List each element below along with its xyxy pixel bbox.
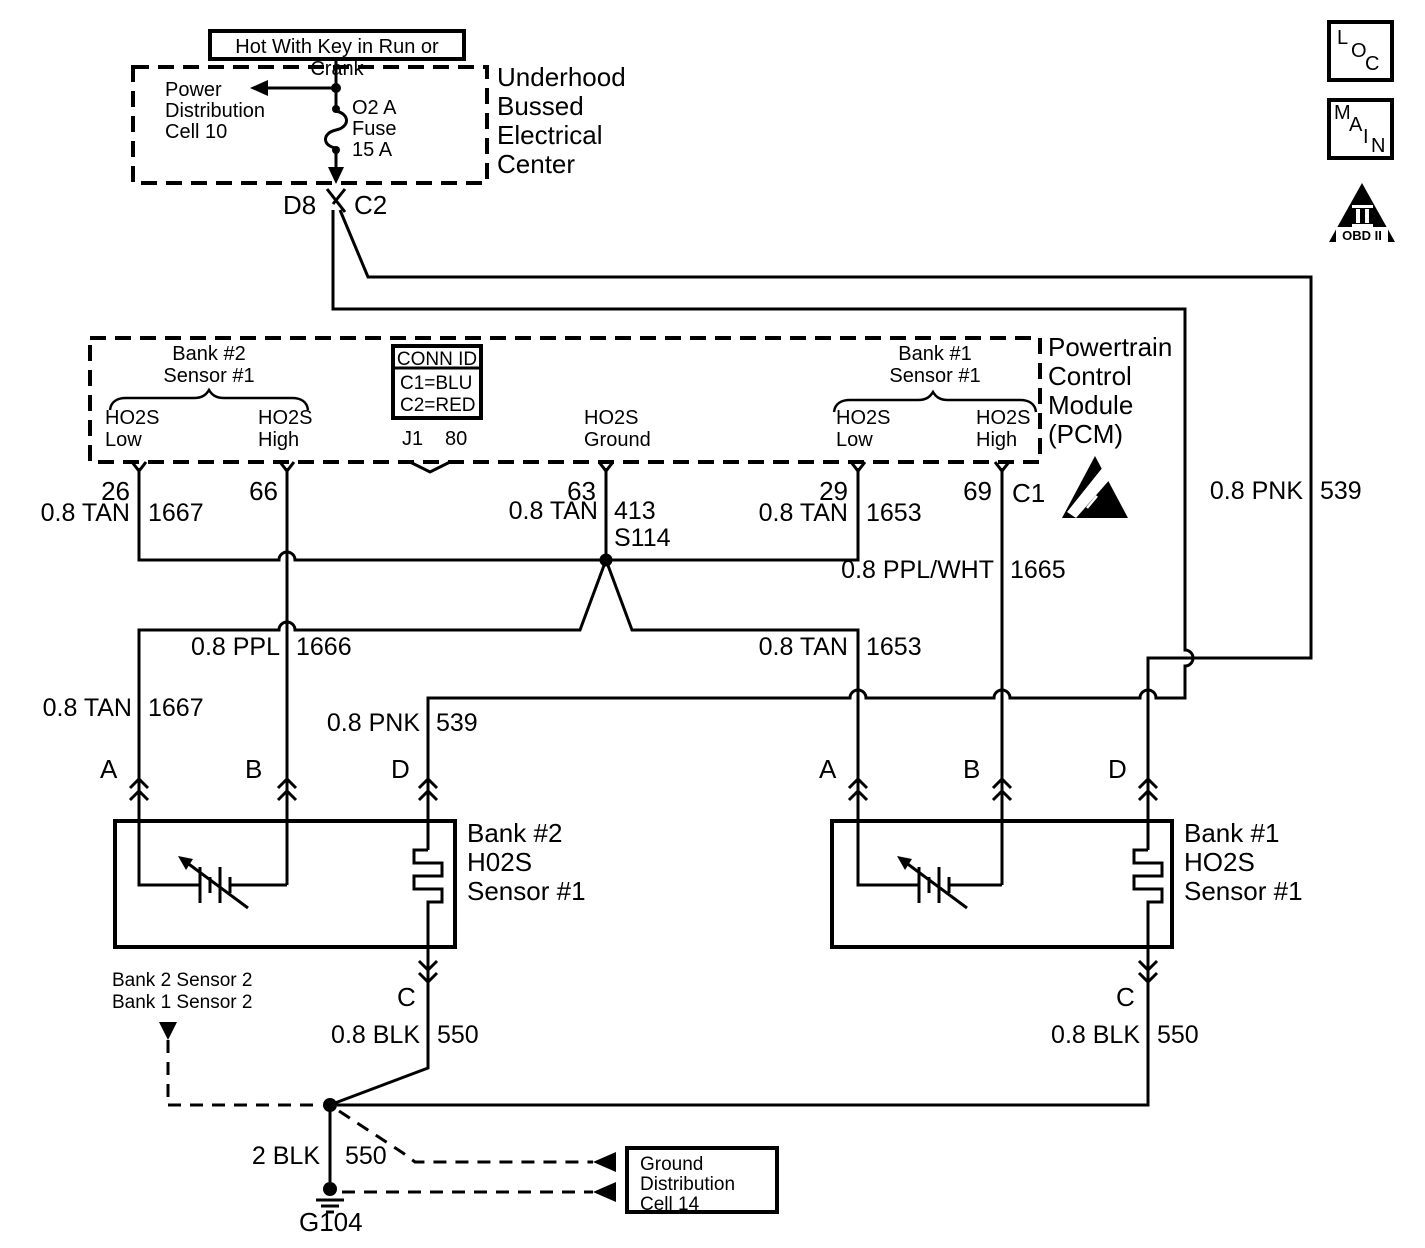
wire-gauge-label: 0.8 TAN: [736, 633, 848, 661]
hot-feed-label: Hot With Key in Run or Crank: [216, 36, 458, 81]
power-dist-line: Cell 10: [165, 121, 227, 143]
wire-gauge-label: 0.8 BLK: [1028, 1021, 1140, 1049]
wire-gauge-label: 0.8 TAN: [486, 497, 598, 525]
sensor2-ref-label: Bank 1 Sensor 2: [112, 992, 252, 1013]
wire-circuit-label: 1653: [866, 633, 922, 661]
ubec-name-line: Electrical: [497, 121, 602, 150]
bank2-pin-b: B: [245, 755, 262, 784]
sensor2-ref-arrow-icon: [159, 1022, 177, 1040]
bank1-pin-d: D: [1108, 755, 1127, 784]
g104-label: G104: [299, 1208, 363, 1237]
bank2-header-line: Sensor #1: [149, 365, 269, 387]
wire-gauge-label: 0.8 PPL/WHT: [806, 556, 994, 584]
pcm-name-line: Module: [1048, 391, 1133, 420]
pcm-pin-69: 69: [920, 477, 992, 506]
wire-gauge-label: 0.8 TAN: [20, 694, 132, 722]
main-letter: A: [1349, 114, 1362, 136]
loc-letter: L: [1337, 27, 1348, 49]
main-letter: I: [1363, 126, 1369, 148]
wiring-diagram-canvas: [0, 0, 1425, 1248]
pcm-name-line: (PCM): [1048, 420, 1123, 449]
pcm-name-line: Powertrain: [1048, 333, 1172, 362]
bank2-pin-a: A: [100, 755, 117, 784]
bank2-arrowhead-icon: [178, 856, 193, 870]
bank2-sensor-name: Bank #2: [467, 819, 562, 848]
bank1-sensor-name: HO2S: [1184, 848, 1255, 877]
wire-gauge-label: 0.8 BLK: [308, 1021, 420, 1049]
ubec-name-line: Center: [497, 150, 575, 179]
wire-gauge-label: 0.8 PNK: [1185, 477, 1303, 505]
fuse-terminal-dot: [332, 105, 340, 113]
ho2s-high-label: HO2S: [258, 407, 312, 429]
fuse-icon: [326, 111, 347, 148]
bank1-pin-b: B: [963, 755, 980, 784]
ho2s-high-label: High: [258, 429, 299, 451]
ground-ref-arrow-icon: [593, 1152, 616, 1172]
ho2s-high-label: High: [976, 429, 1017, 451]
power-dist-line: Power: [165, 79, 222, 101]
wire-circuit-label: 1653: [866, 499, 922, 527]
d8-c2-connector-icon: [327, 189, 345, 212]
wire-circuit-label: 1665: [1010, 556, 1066, 584]
conn-id-row: C2=RED: [400, 395, 476, 416]
ho2s-low-label: Low: [105, 429, 142, 451]
wire-circuit-label: 1667: [148, 499, 204, 527]
j1-label: J1: [402, 428, 423, 450]
main-letter: N: [1371, 135, 1385, 157]
bank1-header-line: Sensor #1: [875, 365, 995, 387]
ho2s-low-label: HO2S: [105, 407, 159, 429]
bank1-arrowhead-icon: [897, 856, 912, 870]
bank1-header-line: Bank #1: [875, 343, 995, 365]
wire-circuit-label: 1666: [296, 633, 352, 661]
bank1-sensor-name: Sensor #1: [1184, 877, 1303, 906]
bank1-heater-icon: [1134, 850, 1162, 946]
bank1-sensor-internals: [858, 821, 1162, 946]
esd-sensitive-icon: [1062, 456, 1128, 518]
wire-circuit-label: 550: [437, 1021, 479, 1049]
fuse-circuit: [266, 58, 347, 212]
wire-circuit-label: 1667: [148, 694, 204, 722]
pin-c2-label: C2: [354, 191, 387, 220]
ground-box-line: Ground: [640, 1154, 703, 1175]
ground-ref-arrow-icon: [593, 1182, 616, 1202]
s114-splice-dot: [600, 554, 613, 567]
ho2s-low-label: HO2S: [836, 407, 890, 429]
fuse-label-line: O2 A: [352, 97, 396, 119]
bank2-pin-d: D: [391, 755, 410, 784]
bank1-sensor-name: Bank #1: [1184, 819, 1279, 848]
fuse-label-line: Fuse: [352, 118, 396, 140]
ho2s-ground-label: HO2S: [584, 407, 638, 429]
ho2s-ground-label: Ground: [584, 429, 651, 451]
brace-icons: [110, 390, 1036, 412]
fuse-label-line: 15 A: [352, 139, 392, 161]
obd-ii-label: OBD II: [1336, 229, 1388, 244]
wire-gauge-label: 0.8 TAN: [736, 499, 848, 527]
pcm-pin-66: 66: [206, 477, 278, 506]
g104-ground-icon: [323, 1182, 337, 1196]
ubec-name-line: Bussed: [497, 92, 584, 121]
ground-box-line: Cell 14: [640, 1194, 699, 1215]
loc-letter: C: [1365, 53, 1379, 75]
wire-circuit-label: 550: [1157, 1021, 1199, 1049]
power-dist-line: Distribution: [165, 100, 265, 122]
wire-circuit-label: 539: [436, 709, 478, 737]
feed-junction-dot: [331, 83, 341, 93]
splice-label: S114: [614, 524, 671, 552]
wire-gauge-label: 0.8 TAN: [18, 499, 130, 527]
wire-gauge-label: 2 BLK: [208, 1142, 320, 1170]
pcm-name-line: Control: [1048, 362, 1132, 391]
wiring-diagram-page: Hot With Key in Run or Crank Power Distr…: [0, 0, 1425, 1248]
pin-d8-label: D8: [283, 191, 316, 220]
bank2-sensor-name: Sensor #1: [467, 877, 586, 906]
bank1-pin-a: A: [819, 755, 836, 784]
conn-id-row: C1=BLU: [400, 373, 472, 394]
pnk-539-inner-wire: [333, 210, 1193, 850]
sensor2-ref-label: Bank 2 Sensor 2: [112, 970, 252, 991]
bank2-heater-icon: [414, 850, 442, 947]
bank2-sensor-internals: [139, 821, 442, 947]
power-dist-arrow-icon: [250, 80, 268, 96]
wire-circuit-label: 550: [345, 1142, 387, 1170]
wire-circuit-label: 413: [614, 497, 656, 525]
bank2-header-line: Bank #2: [149, 343, 269, 365]
ground-junction-dot: [323, 1098, 337, 1112]
j1-pin-count: 80: [445, 428, 467, 450]
fuse-terminal-dot: [332, 146, 340, 154]
wire-gauge-label: 0.8 PPL: [168, 633, 280, 661]
bank2-sensor-name: H02S: [467, 848, 532, 877]
ground-box-line: Distribution: [640, 1174, 735, 1195]
pcm-connector-c1: C1: [1012, 479, 1045, 508]
ho2s-high-label: HO2S: [976, 407, 1030, 429]
bank2-pin-c: C: [397, 983, 416, 1012]
bank1-pin-c: C: [1116, 983, 1135, 1012]
conn-id-title: CONN ID: [395, 349, 479, 370]
wire-circuit-label: 539: [1320, 477, 1362, 505]
wire-gauge-label: 0.8 PNK: [308, 709, 420, 737]
tan-1667-branch-wire: [139, 560, 606, 821]
ho2s-low-label: Low: [836, 429, 873, 451]
ubec-name-line: Underhood: [497, 63, 626, 92]
